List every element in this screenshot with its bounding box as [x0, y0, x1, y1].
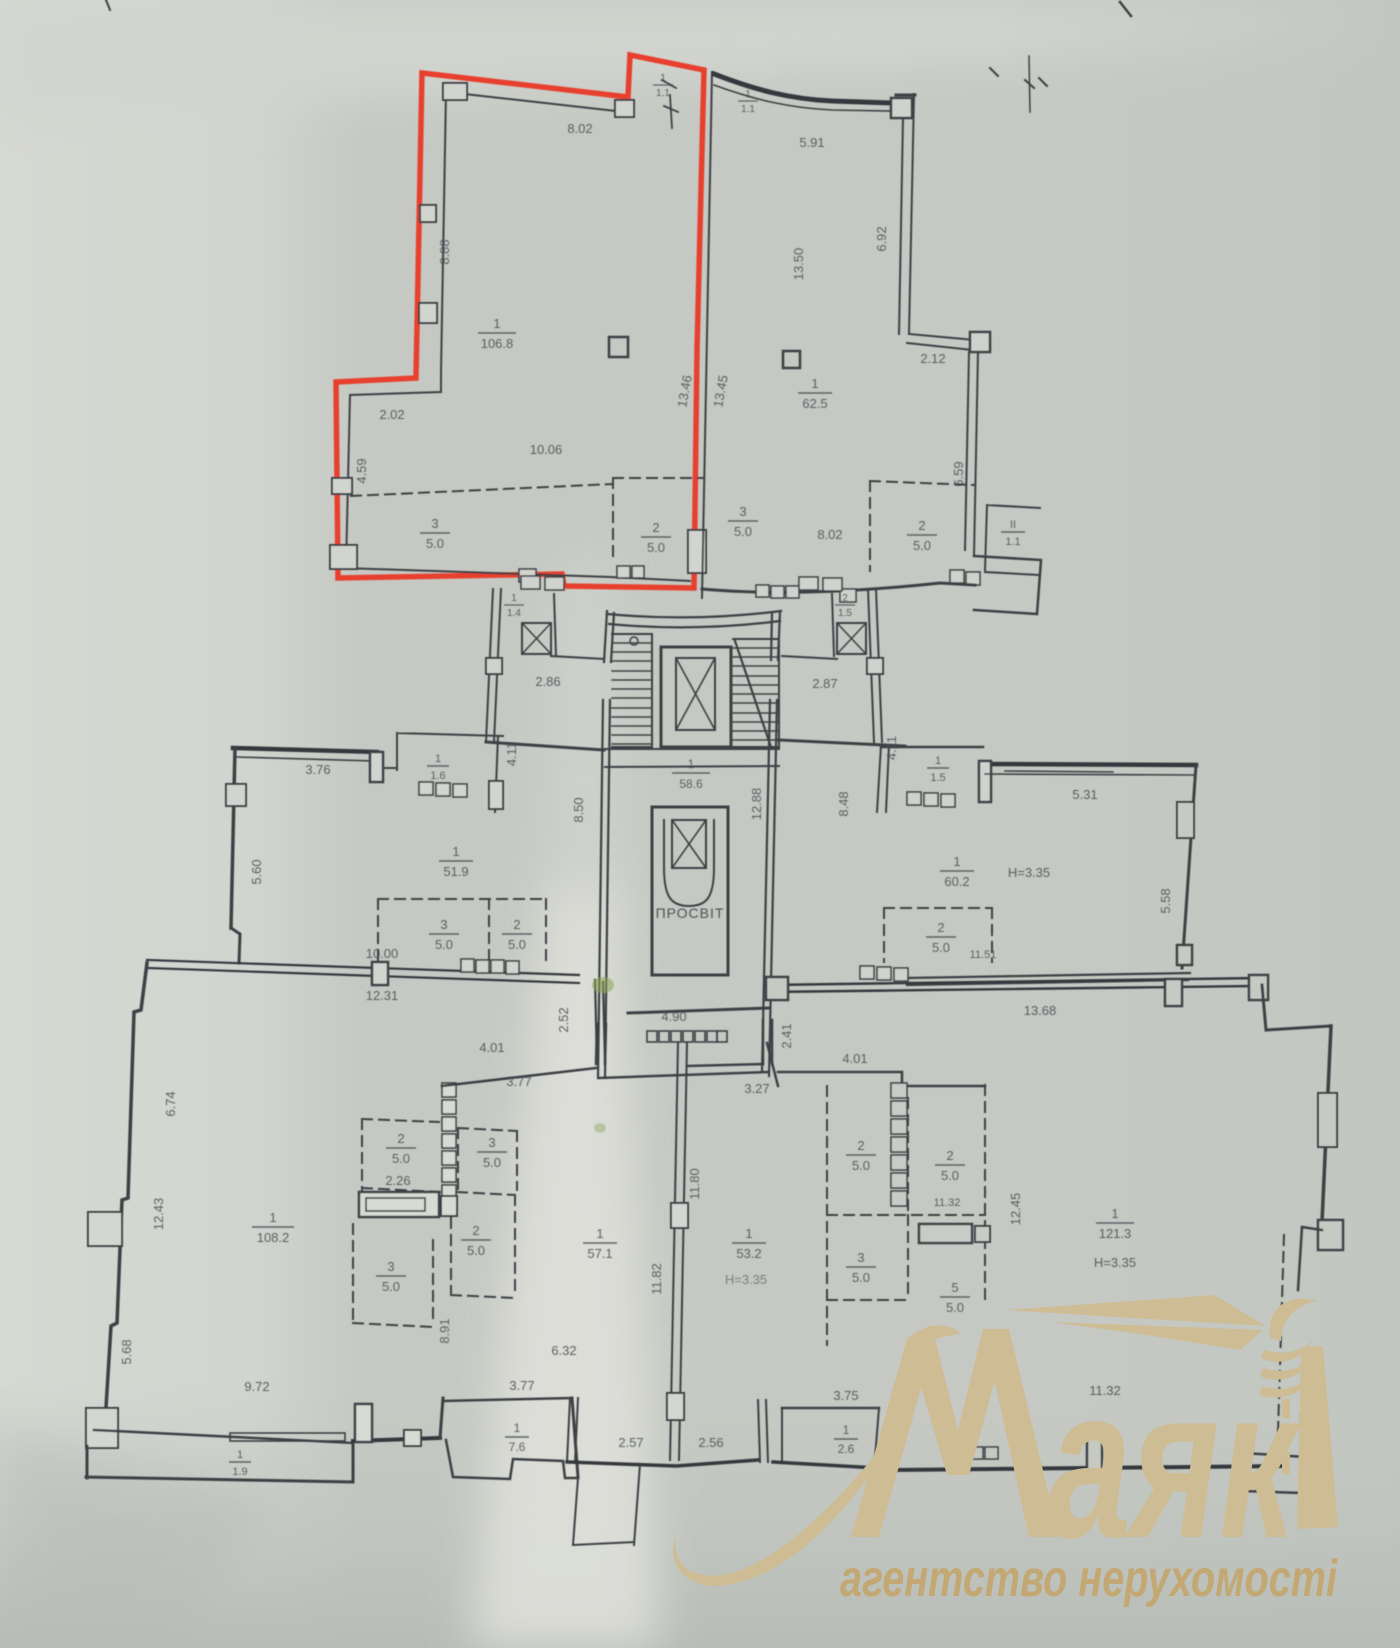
svg-text:4.11: 4.11: [884, 736, 899, 760]
svg-text:6.32: 6.32: [551, 1343, 576, 1358]
svg-text:13.50: 13.50: [791, 248, 806, 281]
svg-text:1: 1: [514, 1421, 521, 1435]
svg-text:2: 2: [842, 593, 848, 604]
svg-text:2: 2: [937, 920, 944, 935]
svg-text:2: 2: [857, 1138, 864, 1153]
svg-text:5.0: 5.0: [435, 937, 453, 952]
svg-text:2.56: 2.56: [698, 1435, 723, 1450]
svg-text:ПРОСВІТ: ПРОСВІТ: [656, 905, 725, 921]
svg-text:1: 1: [237, 1449, 243, 1461]
svg-text:агентство нерухомості: агентство нерухомості: [840, 1550, 1338, 1608]
svg-text:1.5: 1.5: [930, 772, 945, 784]
svg-text:13.68: 13.68: [1024, 1003, 1057, 1018]
svg-text:5.0: 5.0: [508, 937, 526, 952]
svg-text:121.3: 121.3: [1099, 1226, 1132, 1241]
svg-text:1.9: 1.9: [232, 1466, 247, 1478]
svg-text:1.5: 1.5: [838, 608, 852, 619]
svg-text:8.50: 8.50: [571, 797, 586, 822]
svg-text:5.58: 5.58: [1158, 888, 1173, 913]
svg-text:6.74: 6.74: [163, 1091, 178, 1116]
svg-text:2.52: 2.52: [556, 1007, 571, 1032]
svg-text:3: 3: [431, 516, 438, 531]
svg-text:1.1: 1.1: [1005, 536, 1020, 548]
svg-text:3.77: 3.77: [509, 1378, 534, 1393]
svg-text:1: 1: [269, 1210, 276, 1225]
svg-text:1.1: 1.1: [741, 104, 755, 115]
svg-text:1: 1: [935, 755, 941, 767]
svg-text:II: II: [1010, 519, 1016, 531]
svg-text:2: 2: [472, 1223, 479, 1238]
svg-text:3.75: 3.75: [833, 1388, 858, 1403]
svg-text:5: 5: [951, 1280, 958, 1295]
svg-text:1: 1: [452, 844, 459, 859]
svg-text:4.01: 4.01: [479, 1040, 504, 1055]
svg-text:1: 1: [688, 757, 695, 771]
svg-text:4.90: 4.90: [661, 1009, 686, 1024]
svg-text:3.27: 3.27: [744, 1081, 769, 1096]
svg-text:53.2: 53.2: [736, 1246, 761, 1261]
svg-text:5.0: 5.0: [852, 1158, 870, 1173]
svg-text:2: 2: [652, 520, 659, 535]
svg-text:2.87: 2.87: [812, 676, 837, 691]
svg-text:5.0: 5.0: [852, 1270, 870, 1285]
svg-text:58.6: 58.6: [679, 777, 703, 791]
svg-text:1: 1: [435, 753, 441, 765]
svg-text:2: 2: [513, 917, 520, 932]
svg-text:1: 1: [953, 854, 960, 869]
svg-text:5.0: 5.0: [941, 1168, 959, 1183]
svg-text:2: 2: [397, 1131, 404, 1146]
svg-text:5.60: 5.60: [249, 859, 264, 884]
svg-text:Н=3.35: Н=3.35: [1094, 1255, 1136, 1270]
svg-text:1: 1: [1111, 1206, 1118, 1221]
svg-text:57.1: 57.1: [587, 1246, 612, 1261]
svg-text:1: 1: [493, 316, 500, 331]
svg-text:60.2: 60.2: [944, 874, 969, 889]
svg-text:11.51: 11.51: [970, 949, 997, 961]
svg-text:аяк: аяк: [1048, 1342, 1301, 1583]
svg-text:12.43: 12.43: [151, 1198, 166, 1231]
svg-text:3: 3: [857, 1250, 864, 1265]
svg-text:106.8: 106.8: [481, 336, 514, 351]
svg-text:108.2: 108.2: [257, 1230, 290, 1245]
svg-text:1: 1: [745, 1226, 752, 1241]
svg-text:1: 1: [660, 73, 666, 84]
svg-text:5.68: 5.68: [119, 1339, 134, 1364]
svg-text:2.57: 2.57: [618, 1435, 643, 1450]
svg-text:3: 3: [387, 1259, 394, 1274]
svg-text:Н=3.35: Н=3.35: [1008, 865, 1050, 880]
svg-text:2: 2: [946, 1148, 953, 1163]
svg-text:12.31: 12.31: [366, 988, 399, 1003]
svg-text:1: 1: [511, 593, 517, 604]
svg-text:10.00: 10.00: [366, 946, 399, 961]
svg-text:1: 1: [811, 376, 818, 391]
svg-text:6.59: 6.59: [951, 461, 966, 486]
svg-text:62.5: 62.5: [802, 396, 827, 411]
svg-text:3.77: 3.77: [506, 1074, 531, 1089]
svg-text:1.4: 1.4: [507, 608, 521, 619]
svg-text:8.02: 8.02: [817, 527, 842, 542]
svg-text:5.0: 5.0: [932, 940, 950, 955]
svg-text:8.88: 8.88: [437, 239, 452, 264]
svg-text:3: 3: [488, 1135, 495, 1150]
svg-text:2: 2: [918, 518, 925, 533]
svg-text:2.86: 2.86: [535, 674, 560, 689]
svg-text:1.6: 1.6: [430, 770, 445, 782]
svg-text:4.11: 4.11: [504, 742, 519, 766]
svg-text:5.0: 5.0: [483, 1155, 501, 1170]
svg-text:9.72: 9.72: [244, 1379, 269, 1394]
svg-text:11.82: 11.82: [649, 1263, 664, 1295]
svg-text:8.91: 8.91: [437, 1318, 452, 1343]
svg-text:5.0: 5.0: [426, 536, 444, 551]
svg-text:12.45: 12.45: [1008, 1193, 1023, 1226]
svg-text:5.0: 5.0: [382, 1279, 400, 1294]
svg-text:2.6: 2.6: [838, 1442, 855, 1456]
svg-text:11.80: 11.80: [687, 1168, 702, 1200]
svg-text:3: 3: [739, 504, 746, 519]
svg-text:51.9: 51.9: [443, 864, 468, 879]
svg-text:4.01: 4.01: [842, 1051, 867, 1066]
svg-text:2.26: 2.26: [385, 1173, 410, 1188]
svg-text:8.02: 8.02: [567, 121, 592, 136]
svg-text:8.48: 8.48: [836, 791, 851, 816]
svg-text:11.32: 11.32: [934, 1197, 961, 1209]
svg-text:1: 1: [596, 1226, 603, 1241]
svg-text:5.0: 5.0: [913, 538, 931, 553]
svg-text:5.91: 5.91: [799, 135, 824, 150]
svg-text:2.02: 2.02: [379, 407, 404, 422]
svg-text:3.76: 3.76: [305, 762, 330, 777]
svg-text:5.0: 5.0: [946, 1300, 964, 1315]
svg-text:6.92: 6.92: [874, 226, 889, 251]
svg-text:10.06: 10.06: [530, 442, 563, 457]
svg-text:5.0: 5.0: [392, 1151, 410, 1166]
svg-text:1.1: 1.1: [656, 88, 670, 99]
svg-text:5.0: 5.0: [467, 1243, 485, 1258]
svg-text:5.31: 5.31: [1072, 787, 1097, 802]
svg-text:1: 1: [843, 1423, 850, 1437]
svg-text:1: 1: [745, 89, 751, 100]
svg-text:2.12: 2.12: [920, 351, 945, 366]
svg-text:5.0: 5.0: [647, 540, 665, 555]
svg-text:7.6: 7.6: [509, 1440, 526, 1454]
svg-text:5.0: 5.0: [734, 524, 752, 539]
svg-text:4.59: 4.59: [354, 458, 369, 483]
svg-text:3: 3: [440, 917, 447, 932]
svg-text:Н=3.35: Н=3.35: [725, 1272, 767, 1287]
svg-text:12.88: 12.88: [749, 788, 764, 821]
svg-text:2.41: 2.41: [779, 1023, 794, 1048]
